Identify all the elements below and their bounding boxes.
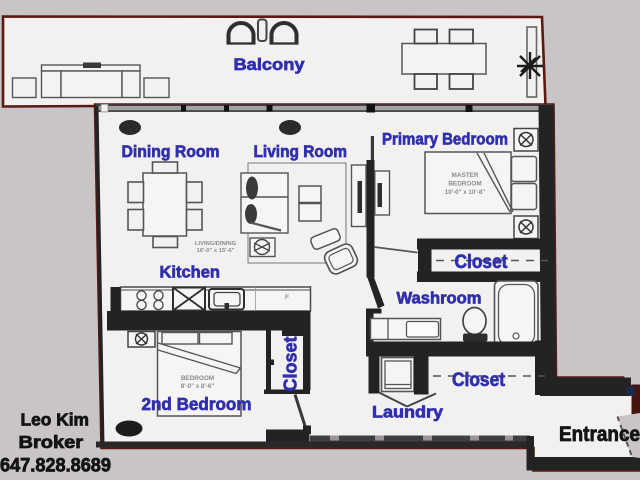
svg-text:Primary Bedroom: Primary Bedroom — [382, 131, 508, 149]
svg-text:8'-0" x 8'-6": 8'-0" x 8'-6" — [181, 383, 215, 390]
svg-text:Closet: Closet — [281, 336, 301, 391]
svg-text:647.828.8689: 647.828.8689 — [0, 455, 111, 477]
svg-text:Closet: Closet — [455, 252, 509, 273]
svg-text:MASTER: MASTER — [452, 172, 479, 179]
svg-text:Dining Room: Dining Room — [122, 143, 220, 161]
svg-text:Laundry: Laundry — [372, 404, 444, 422]
svg-text:2nd Bedroom: 2nd Bedroom — [142, 394, 252, 414]
svg-text:Entrance: Entrance — [559, 423, 640, 446]
svg-text:BEDROOM: BEDROOM — [448, 181, 481, 188]
svg-text:F: F — [285, 294, 289, 301]
svg-text:Kitchen: Kitchen — [160, 264, 221, 282]
svg-text:Leo Kim: Leo Kim — [21, 410, 90, 430]
svg-text:BEDROOM: BEDROOM — [181, 375, 214, 382]
svg-text:Balcony: Balcony — [234, 55, 306, 74]
svg-text:Broker: Broker — [19, 432, 84, 452]
svg-text:LIVING/DINING: LIVING/DINING — [195, 241, 237, 247]
svg-text:Washroom: Washroom — [397, 289, 482, 308]
svg-text:Closet: Closet — [452, 370, 506, 391]
svg-text:Living Room: Living Room — [254, 143, 348, 161]
svg-text:16'-0" x 15'-6": 16'-0" x 15'-6" — [197, 248, 235, 254]
svg-text:10'-0" x 10'-8": 10'-0" x 10'-8" — [445, 189, 486, 196]
